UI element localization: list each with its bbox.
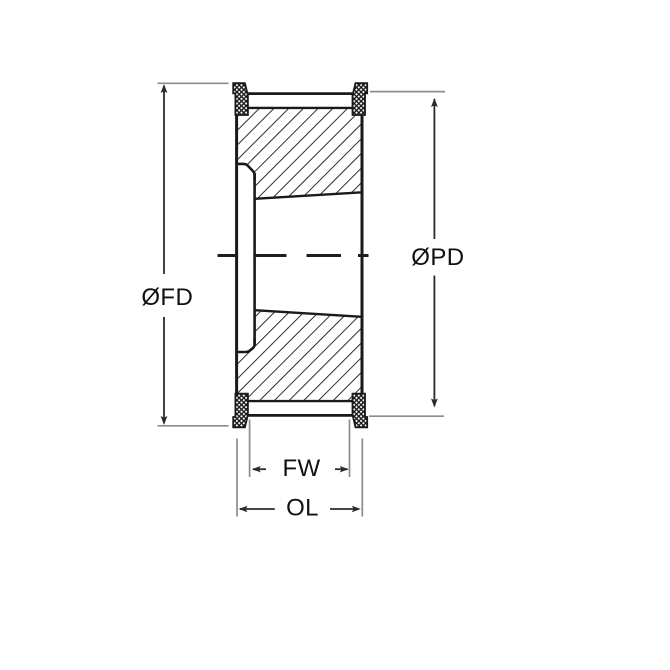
svg-text:ØPD: ØPD: [411, 244, 464, 271]
svg-text:ØFD: ØFD: [141, 284, 193, 311]
svg-text:OL: OL: [286, 495, 319, 522]
svg-text:FW: FW: [282, 455, 320, 482]
